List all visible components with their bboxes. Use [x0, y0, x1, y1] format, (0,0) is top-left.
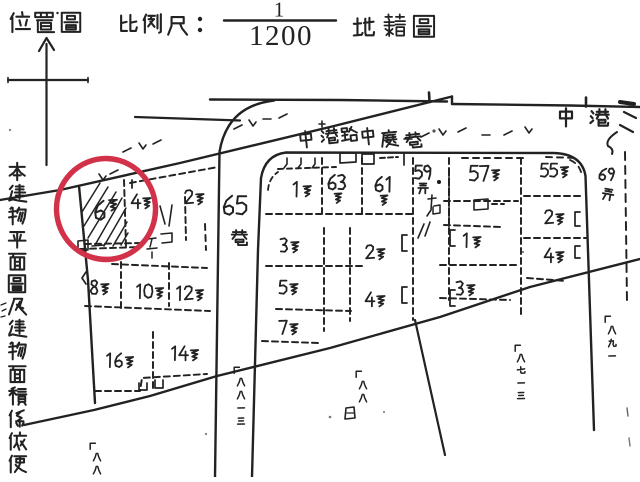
svg-text:1: 1: [274, 0, 285, 22]
svg-text:1200: 1200: [249, 20, 313, 52]
